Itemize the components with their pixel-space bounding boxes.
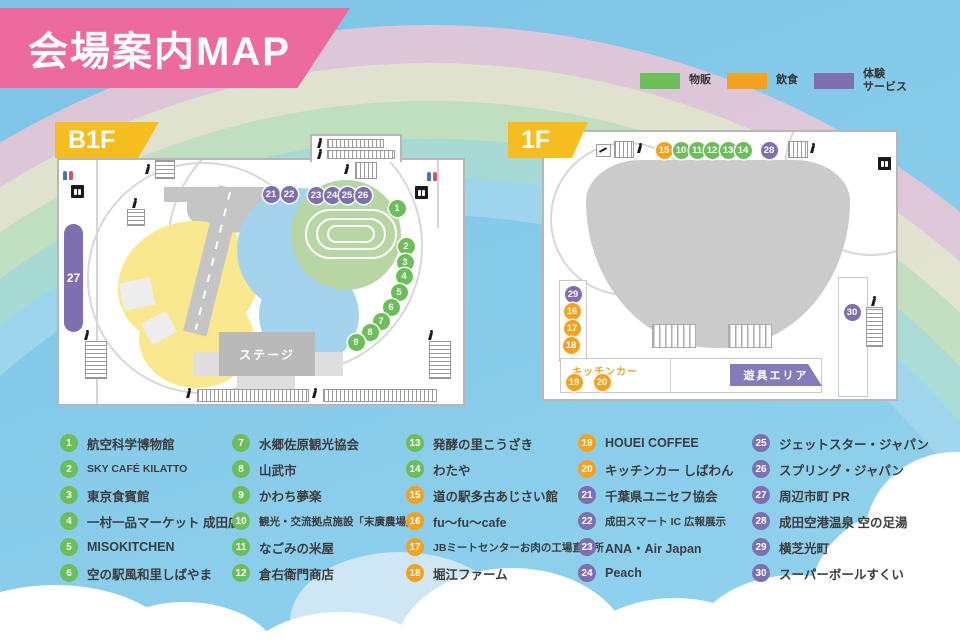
item-number-badge: 5 (60, 538, 78, 556)
item-label: 東京食賓館 (87, 486, 150, 505)
directory-item: 26スプリング・ジャパン (752, 456, 929, 482)
directory-item: 21千葉県ユニセフ協会 (578, 482, 733, 508)
item-number-badge: 11 (232, 538, 250, 556)
category-legend: 物販飲食体験 サービス (640, 68, 907, 93)
b1f-top-notch (310, 134, 402, 162)
map-marker-5: 5 (391, 284, 408, 301)
item-label: 成田スマート IC 広報展示 (605, 514, 726, 529)
directory-item: 11なごみの米屋 (232, 534, 417, 560)
stairs-icon (866, 307, 883, 347)
map-marker-15: 15 (656, 142, 673, 159)
map-marker-14: 14 (735, 142, 752, 159)
f1-markers: 1510111213142829161718192030 (544, 132, 896, 399)
directory-item: 3東京食賓館 (60, 482, 240, 508)
legend-label: 物販 (689, 74, 711, 87)
map-marker-21: 21 (263, 186, 280, 203)
map-marker-12: 12 (704, 142, 721, 159)
item-label: わたや (433, 460, 471, 479)
item-label: fu～fu～cafe (433, 512, 507, 531)
stairs-icon (127, 209, 145, 226)
playground-area: 遊具エリア (730, 364, 822, 386)
item-number-badge: 13 (406, 434, 424, 452)
arena-steps (652, 324, 696, 348)
item-label: 一村一品マーケット 成田店 (87, 512, 240, 531)
map-marker-29: 29 (565, 286, 582, 303)
item-number-badge: 17 (406, 538, 424, 556)
map-marker-26: 26 (355, 187, 372, 204)
item-number-badge: 21 (578, 486, 596, 504)
map-marker-9: 9 (348, 334, 365, 351)
item-number-badge: 26 (752, 460, 770, 478)
item-number-badge: 23 (578, 538, 596, 556)
directory-item: 20キッチンカー しばわん (578, 456, 733, 482)
item-number-badge: 10 (232, 512, 250, 530)
directory-item: 13発酵の里こうざき (406, 430, 604, 456)
legend-swatch (814, 73, 854, 89)
item-label: 道の駅多古あじさい館 (433, 486, 558, 505)
legend-item: 物販 (640, 73, 711, 89)
item-label: MISOKITCHEN (87, 540, 175, 554)
item-number-badge: 14 (406, 460, 424, 478)
escalator-icon (311, 388, 319, 398)
stairs-icon (614, 141, 634, 158)
stairs-icon (343, 164, 351, 174)
item-label: 山武市 (259, 460, 297, 479)
item-label: HOUEI COFFEE (605, 436, 699, 450)
stairs-icon (144, 164, 152, 174)
directory-item: 17JBミートセンターお肉の工場直売所 (406, 534, 604, 560)
item-label: キッチンカー しばわん (605, 460, 733, 479)
map-marker-16: 16 (564, 303, 581, 320)
item-number-badge: 6 (60, 564, 78, 582)
item-number-badge: 20 (578, 460, 596, 478)
escalator-icon (870, 296, 878, 306)
item-number-badge: 16 (406, 512, 424, 530)
restroom-icon (427, 172, 437, 181)
item-label: ANA・Air Japan (605, 538, 702, 557)
directory-column: 25ジェットスター・ジャパン26スプリング・ジャパン27周辺市町 PR28成田空… (752, 430, 929, 586)
elevator-icon (71, 185, 84, 198)
directory-item: 15道の駅多古あじさい館 (406, 482, 604, 508)
map-marker-10: 10 (673, 142, 690, 159)
map-marker-17: 17 (564, 320, 581, 337)
item-label: 倉右衛門商店 (259, 564, 334, 583)
item-label: 周辺市町 PR (779, 486, 850, 505)
item-number-badge: 22 (578, 512, 596, 530)
map-marker-25: 25 (339, 187, 356, 204)
stairs-icon (809, 143, 817, 153)
page-title: 会場案内MAP (28, 19, 291, 77)
directory-item: 19HOUEI COFFEE (578, 430, 733, 456)
map-marker-22: 22 (281, 186, 298, 203)
map-marker-19: 19 (566, 374, 583, 391)
item-number-badge: 19 (578, 434, 596, 452)
stairs-icon (788, 141, 808, 158)
item-label: SKY CAFÉ KILATTO (87, 463, 187, 475)
legend-label: 体験 サービス (863, 68, 907, 93)
item-label: 堀江ファーム (433, 564, 508, 583)
item-label: スーパーボールすくい (779, 564, 904, 583)
item-number-badge: 24 (578, 564, 596, 582)
directory-item: 2SKY CAFÉ KILATTO (60, 456, 240, 482)
map-marker-4: 4 (396, 268, 413, 285)
item-label: 成田空港温泉 空の足湯 (779, 512, 907, 531)
stairs-icon (83, 330, 91, 340)
item-label: 観光・交流拠点施設「末廣農場」 (259, 514, 417, 529)
directory-item: 25ジェットスター・ジャパン (752, 430, 929, 456)
directory-column: 13発酵の里こうざき14わたや15道の駅多古あじさい館16fu～fu～cafe1… (406, 430, 604, 586)
map-marker-23: 23 (308, 187, 325, 204)
stairs-icon (355, 162, 377, 179)
item-number-badge: 29 (752, 538, 770, 556)
directory-item: 4一村一品マーケット 成田店 (60, 508, 240, 534)
title-banner: 会場案内MAP (0, 8, 350, 88)
legend-swatch (640, 73, 680, 89)
stairs-icon (429, 341, 451, 379)
map-marker-20: 20 (594, 374, 611, 391)
map-marker-11: 11 (689, 142, 706, 159)
item-number-badge: 27 (752, 486, 770, 504)
map-marker-13: 13 (720, 142, 737, 159)
playground-label: 遊具エリア (744, 367, 809, 383)
directory-item: 5MISOKITCHEN (60, 534, 240, 560)
directory-column: 1航空科学博物館2SKY CAFÉ KILATTO3東京食賓館4一村一品マーケッ… (60, 430, 240, 586)
f1-panel: キッチンカー 遊具エリア 151011121314282916171819203… (542, 130, 898, 401)
item-number-badge: 12 (232, 564, 250, 582)
item-label: 航空科学博物館 (87, 434, 175, 453)
directory-item: 27周辺市町 PR (752, 482, 929, 508)
directory-item: 18堀江ファーム (406, 560, 604, 586)
restroom-icon (63, 171, 73, 180)
legend-label: 飲食 (776, 74, 798, 87)
poster-canvas: 会場案内MAP 物販飲食体験 サービス B1F 1F ステージ (0, 0, 960, 640)
item-label: なごみの米屋 (259, 538, 334, 557)
item-label: 空の駅風和里しばやま (87, 564, 212, 583)
arena-steps (728, 324, 772, 348)
item-label: かわち夢楽 (259, 486, 322, 505)
item-label: 横芝光町 (779, 538, 829, 557)
stairs-icon (85, 341, 107, 379)
escalator-icon (323, 389, 437, 402)
item-number-badge: 2 (60, 460, 78, 478)
escalator-icon (185, 388, 193, 398)
map-marker-18: 18 (563, 337, 580, 354)
item-label: 発酵の里こうざき (433, 434, 533, 453)
item-number-badge: 8 (232, 460, 250, 478)
directory-item: 24Peach (578, 560, 733, 586)
legend-item: 体験 サービス (814, 68, 907, 93)
item-label: ジェットスター・ジャパン (779, 434, 929, 453)
elevator-icon (415, 186, 428, 199)
item-number-badge: 28 (752, 512, 770, 530)
directory-item: 14わたや (406, 456, 604, 482)
b1f-markers: 212223242526123456789 (59, 160, 463, 404)
item-number-badge: 1 (60, 434, 78, 452)
stairs-icon (636, 143, 644, 153)
directory-item: 9かわち夢楽 (232, 482, 417, 508)
escalator-icon (327, 139, 384, 148)
item-number-badge: 25 (752, 434, 770, 452)
item-number-badge: 4 (60, 512, 78, 530)
item-label: 水郷佐原観光協会 (259, 434, 359, 453)
directory-item: 28成田空港温泉 空の足湯 (752, 508, 929, 534)
item-number-badge: 18 (406, 564, 424, 582)
directory-item: 23ANA・Air Japan (578, 534, 733, 560)
escalator-icon (596, 144, 611, 157)
directory-column: 19HOUEI COFFEE20キッチンカー しばわん21千葉県ユニセフ協会22… (578, 430, 733, 586)
stairs-icon (131, 198, 139, 208)
map-marker-28: 28 (761, 142, 778, 159)
escalator-icon (327, 150, 395, 159)
item-number-badge: 7 (232, 434, 250, 452)
map-marker-1: 1 (389, 200, 406, 217)
directory-column: 7水郷佐原観光協会8山武市9かわち夢楽10観光・交流拠点施設「末廣農場」11なご… (232, 430, 417, 586)
directory-item: 8山武市 (232, 456, 417, 482)
item-number-badge: 3 (60, 486, 78, 504)
item-number-badge: 9 (232, 486, 250, 504)
b1f-panel: ステージ 27 212223242526123456789 (57, 158, 465, 406)
directory-item: 7水郷佐原観光協会 (232, 430, 417, 456)
elevator-icon (878, 157, 891, 170)
legend-swatch (727, 73, 767, 89)
item-label: 千葉県ユニセフ協会 (605, 486, 718, 505)
item-label: Peach (605, 566, 642, 580)
item-number-badge: 15 (406, 486, 424, 504)
stairs-icon (427, 330, 435, 340)
map-marker-30: 30 (844, 304, 861, 321)
directory-item: 30スーパーボールすくい (752, 560, 929, 586)
directory-item: 1航空科学博物館 (60, 430, 240, 456)
stairs-icon (155, 160, 175, 179)
directory-item: 16fu～fu～cafe (406, 508, 604, 534)
directory-item: 6空の駅風和里しばやま (60, 560, 240, 586)
escalator-icon (316, 149, 324, 159)
escalator-icon (316, 138, 324, 148)
map-marker-2: 2 (398, 238, 415, 255)
directory-item: 10観光・交流拠点施設「末廣農場」 (232, 508, 417, 534)
directory-item: 29横芝光町 (752, 534, 929, 560)
map-marker-24: 24 (324, 187, 341, 204)
map-marker-27: 27 (64, 224, 83, 332)
directory-item: 12倉右衛門商店 (232, 560, 417, 586)
item-label: スプリング・ジャパン (779, 460, 904, 479)
escalator-icon (197, 389, 309, 402)
item-number-badge: 30 (752, 564, 770, 582)
legend-item: 飲食 (727, 73, 798, 89)
directory-item: 22成田スマート IC 広報展示 (578, 508, 733, 534)
